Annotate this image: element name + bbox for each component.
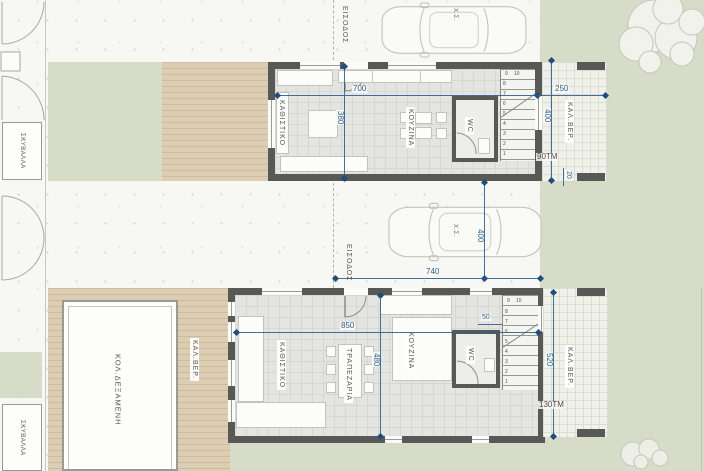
entrance-bottom-label: ΕΙΣΟΔΟΣ — [345, 244, 352, 282]
garden-left-patch — [0, 352, 42, 398]
bush-icon — [618, 436, 672, 470]
kitchen-a-label: ΚΟΥΖΙΝΑ — [406, 107, 415, 148]
stair-a-num: 10 — [514, 72, 520, 77]
pool-label: ΚΟΛ.ΔΕΞΑΜΕΝΗ — [114, 354, 122, 426]
chair-b-1 — [326, 346, 336, 357]
window-a-2 — [388, 62, 436, 69]
deck-top — [162, 62, 268, 181]
veranda-a-wall-bottom — [577, 173, 605, 181]
right-plot-line — [701, 288, 702, 471]
car-bottom-label: Χ.Σ. — [452, 224, 458, 237]
stair-a-num: 4 — [503, 122, 506, 127]
entrance-top-label: ΕΙΣΟΔΟΣ — [341, 6, 348, 44]
dim-850-label: 850 — [340, 322, 355, 330]
window-a-left — [268, 100, 275, 148]
stair-a-num: 9 — [505, 72, 508, 77]
veranda-b-wall-bottom — [577, 429, 605, 437]
dim-20-label: 20 — [565, 170, 572, 180]
door-b-opening — [344, 288, 368, 295]
counter-a-divider2 — [420, 70, 421, 83]
coffee-table-a — [308, 110, 338, 138]
stair-a-num: 5 — [503, 112, 506, 117]
car-top-label: Χ.Σ. — [452, 8, 458, 21]
window-b-left-4 — [228, 400, 235, 422]
veranda-a-wall-top — [577, 62, 605, 70]
dim-520-label: 520 — [545, 352, 553, 367]
stair-b-num: 1 — [505, 380, 508, 385]
dim-400a-label: 400 — [543, 108, 551, 123]
dim-line-250 — [537, 95, 605, 96]
living-a-label: ΚΑΘΙΣΤΙΚΟ — [277, 98, 286, 148]
window-b-bottom-1 — [385, 436, 402, 443]
door-a-veranda — [535, 96, 542, 130]
garden-top-left — [48, 62, 162, 181]
garbage-bottom-label: ΣΚΥΒΑΛΛΑ — [18, 418, 26, 458]
garden-bottom-strip — [230, 443, 543, 471]
window-b-left-1 — [228, 302, 235, 316]
dim-700-label: 700 — [352, 85, 367, 93]
window-b-top-3 — [470, 288, 492, 295]
site-plan: ΣΚΥΒΑΛΛΑ ΣΚΥΒΑΛΛΑ ΚΟΛ.ΔΕΞΑΜΕΝΗ ΚΑΛ.ΒΕΡ. … — [0, 0, 704, 471]
window-b-top-1 — [262, 288, 302, 295]
window-b-bottom-2 — [472, 436, 489, 443]
stair-a-num: 6 — [503, 102, 506, 107]
stair-b-num: 4 — [505, 350, 508, 355]
dining-table-a-1 — [415, 112, 432, 124]
window-b-top-2 — [392, 288, 422, 295]
dining-b-label: ΤΡΑΠΕΖΑΡΙΑ — [344, 346, 353, 403]
dim-740-label: 740 — [425, 268, 440, 276]
sofa-a-bottom — [280, 156, 368, 172]
area-a-label: 90ΤΜ — [536, 153, 558, 161]
veranda-b-wall-top — [577, 288, 605, 296]
dim-50-label: 50 — [481, 314, 491, 321]
stair-b-num: 3 — [505, 360, 508, 365]
kitchen-counter-a — [338, 70, 452, 83]
pool-veranda-label: ΚΑΛ.ΒΕΡ. — [190, 338, 199, 381]
dim-400m-label: 400 — [476, 228, 484, 243]
kitchen-counter-b — [380, 295, 452, 315]
living-b-label: ΚΑΘΙΣΤΙΚΟ — [277, 340, 286, 390]
dim-line-20 — [563, 168, 564, 186]
dim-480-label: 480 — [372, 352, 380, 367]
wc-b-door-arc-icon — [456, 360, 480, 386]
chair-a-3 — [436, 112, 447, 123]
dim-line-50 — [478, 324, 502, 325]
garbage-top-label: ΣΚΥΒΑΛΛΑ — [18, 131, 26, 171]
wc-a-sink — [478, 138, 490, 154]
stair-b-num: 10 — [516, 299, 522, 304]
chair-b-6 — [364, 382, 374, 393]
chair-b-3 — [326, 382, 336, 393]
sofa-b-left — [238, 316, 264, 402]
tree-icon — [612, 0, 704, 80]
stair-b-num: 8 — [505, 310, 508, 315]
window-a-1 — [300, 62, 340, 69]
sofa-b-bottom — [236, 402, 326, 428]
dim-line-700 — [277, 95, 537, 96]
car-bottom-icon — [386, 200, 544, 264]
stair-a-num: 8 — [503, 82, 506, 87]
stair-a-num: 1 — [503, 152, 506, 157]
wc-a-label: WC — [465, 117, 474, 135]
wc-b-label: WC — [466, 346, 475, 364]
dim-line-740 — [335, 278, 540, 279]
chair-a-4 — [436, 128, 447, 139]
kitchen-b-label: ΚΟΥΖΙΝΑ — [406, 330, 415, 371]
veranda-b-label: ΚΑΛ.ΒΕΡ. — [565, 345, 574, 388]
stair-b-num: 2 — [505, 370, 508, 375]
dim-250-label: 250 — [554, 85, 569, 93]
door-b-arc-icon — [344, 295, 368, 319]
garbage-box-bottom: ΣΚΥΒΑΛΛΑ — [2, 404, 42, 471]
sofa-a-top — [277, 70, 333, 86]
chair-b-2 — [326, 364, 336, 375]
dining-table-a-2 — [415, 127, 432, 139]
wc-b-sink — [484, 358, 495, 372]
garbage-box-top: ΣΚΥΒΑΛΛΑ — [2, 122, 42, 180]
veranda-a-label: ΚΑΛ.ΒΕΡ. — [565, 100, 574, 143]
window-b-left-3 — [228, 360, 235, 386]
stair-b-num: 7 — [505, 320, 508, 325]
lot-dash-top — [333, 0, 334, 60]
stair-b-num: 5 — [505, 340, 508, 345]
dim-380-label: 380 — [336, 110, 344, 125]
stair-b-num: 9 — [507, 299, 510, 304]
kitchen-block-b — [392, 317, 452, 381]
wc-a-door-arc-icon — [456, 132, 478, 156]
area-b-label: 130ΤΜ — [538, 401, 565, 409]
lot-dash-mid — [333, 183, 334, 288]
stair-a-num: 2 — [503, 142, 506, 147]
counter-a-divider — [372, 70, 373, 83]
stair-a-num: 3 — [503, 132, 506, 137]
dim-line-850 — [236, 332, 538, 333]
pool: ΚΟΛ.ΔΕΞΑΜΕΝΗ — [62, 300, 178, 471]
